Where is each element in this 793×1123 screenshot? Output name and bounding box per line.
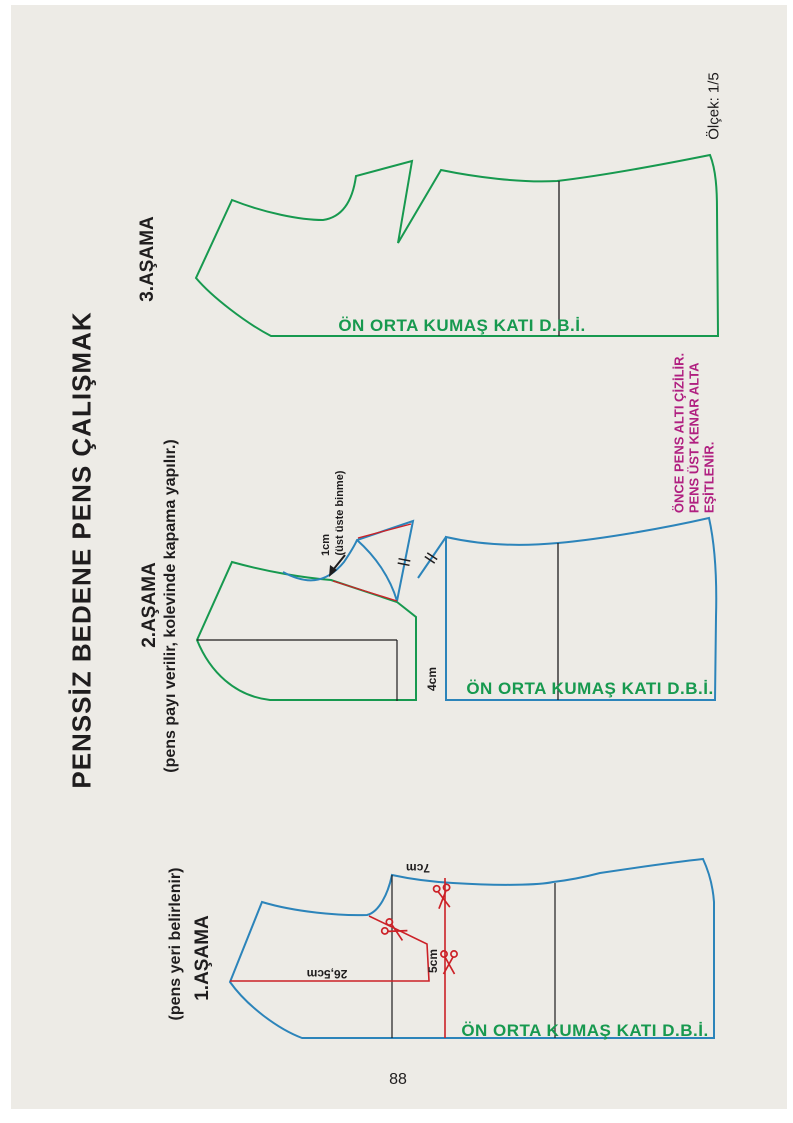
measure-5-label: 5cm [426, 949, 440, 973]
stage1-pattern [230, 859, 714, 1038]
scanned-book-page: PENSSİZ BEDENE PENS ÇALIŞMAK Ölçek: 1/5 … [0, 0, 793, 1123]
page-title: PENSSİZ BEDENE PENS ÇALIŞMAK [67, 311, 98, 788]
stage2-old-dart-edge [358, 524, 411, 538]
note-line: PENS ÜST KENAR ALTA [687, 353, 702, 513]
stage3-fold-label: ÖN ORTA KUMAŞ KATI D.B.İ. [338, 316, 585, 336]
stage1-subheading: (pens yeri belirlenir) [167, 868, 185, 1021]
measure-26-label: 26,5cm [307, 967, 348, 981]
stage2-side-piece-edge [418, 537, 446, 578]
stage2-instruction-note: ÖNCE PENS ALTI ÇİZİLİR. PENS ÜST KENAR A… [672, 353, 717, 513]
stage2-heading: 2.AŞAMA [139, 562, 161, 648]
stage2-pattern [197, 518, 716, 701]
stage1-bodice-outline [230, 859, 714, 1038]
stage2-subheading: (pens payı verilir, kolevinde kapama yap… [162, 439, 180, 772]
scale-note: Ölçek: 1/5 [706, 72, 723, 140]
note-line: EŞİTLENİR. [702, 353, 717, 513]
overlap-note-label: (üst üste binme) [334, 471, 346, 556]
page-number: 88 [389, 1071, 407, 1089]
stage2-lower-piece-outline [446, 518, 716, 700]
note-line: ÖNCE PENS ALTI ÇİZİLİR. [672, 353, 687, 513]
stage1-heading: 1.AŞAMA [192, 915, 214, 1001]
measure-7-label: 7cm [406, 861, 430, 875]
stage2-fold-label: ÖN ORTA KUMAŞ KATI D.B.İ. [466, 679, 713, 699]
stage2-shoulder-piece-outline [197, 562, 416, 700]
stage2-rotated-dart-wedge [283, 521, 413, 601]
stage1-fold-label: ÖN ORTA KUMAŞ KATI D.B.İ. [461, 1021, 708, 1041]
scissors-icon [441, 951, 457, 974]
stage3-heading: 3.AŞAMA [137, 216, 159, 302]
overlap-arrow [329, 555, 345, 577]
stage3-bodice-outline [196, 155, 718, 336]
stage3-pattern [196, 155, 718, 336]
pattern-diagrams [0, 0, 793, 1123]
gap-measure-label: 4cm [425, 667, 439, 691]
overlap-value-label: 1cm [320, 534, 332, 556]
scissors-icon [433, 884, 452, 909]
stage2-old-dart-leg [333, 581, 397, 601]
scissors-icon [381, 918, 409, 943]
